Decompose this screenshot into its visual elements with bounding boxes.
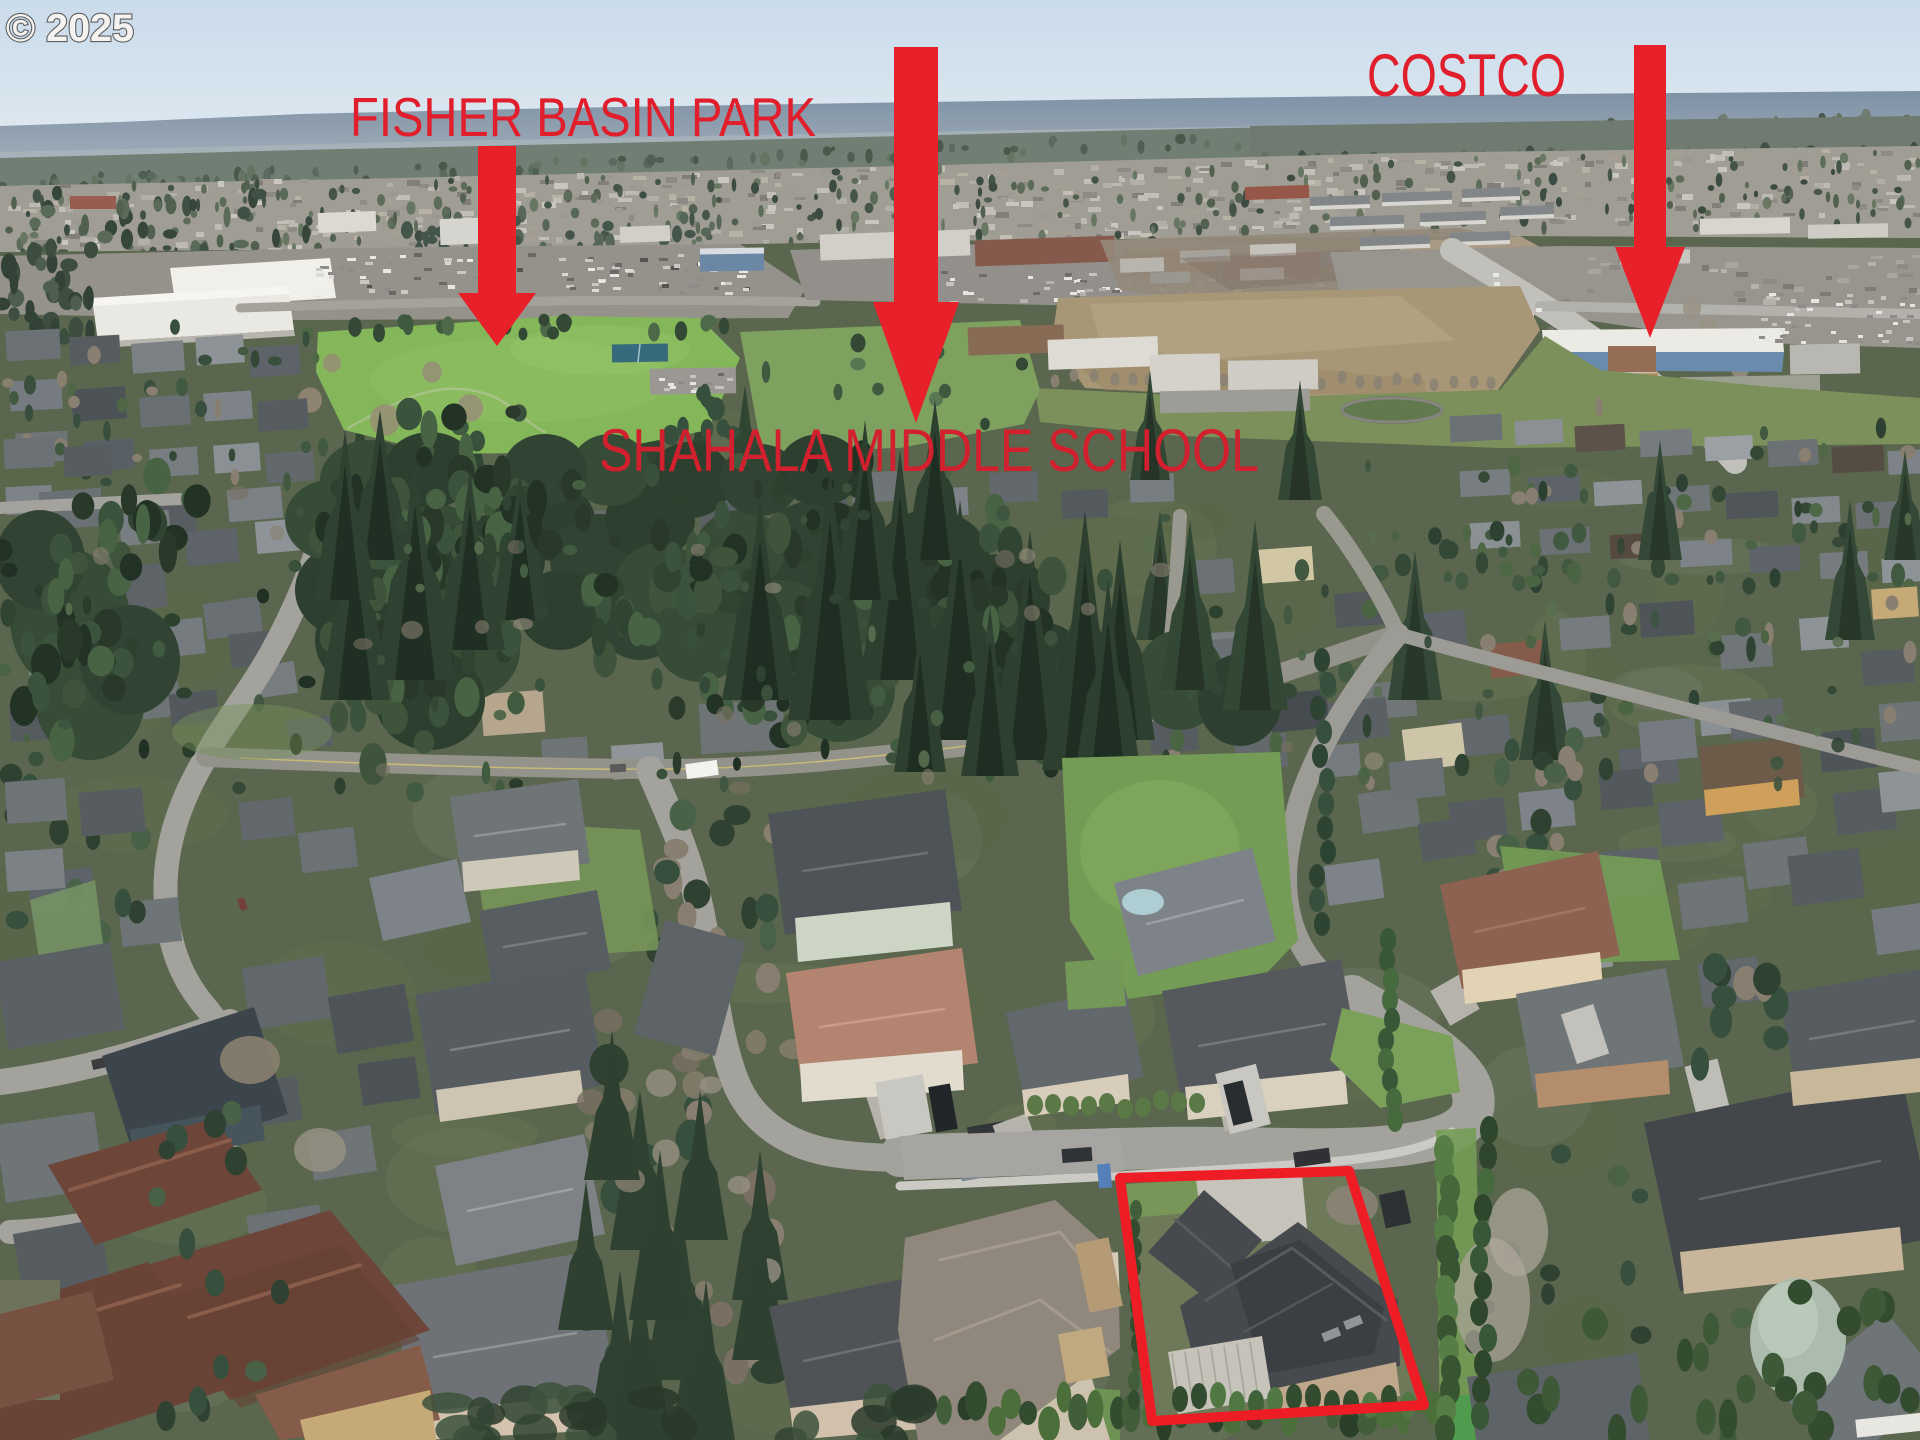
svg-text:SHAHALA MIDDLE SCHOOL: SHAHALA MIDDLE SCHOOL (599, 417, 1259, 484)
svg-text:COSTCO: COSTCO (1367, 42, 1566, 109)
svg-text:© 2025: © 2025 (6, 7, 134, 50)
svg-text:FISHER BASIN PARK: FISHER BASIN PARK (350, 86, 816, 148)
